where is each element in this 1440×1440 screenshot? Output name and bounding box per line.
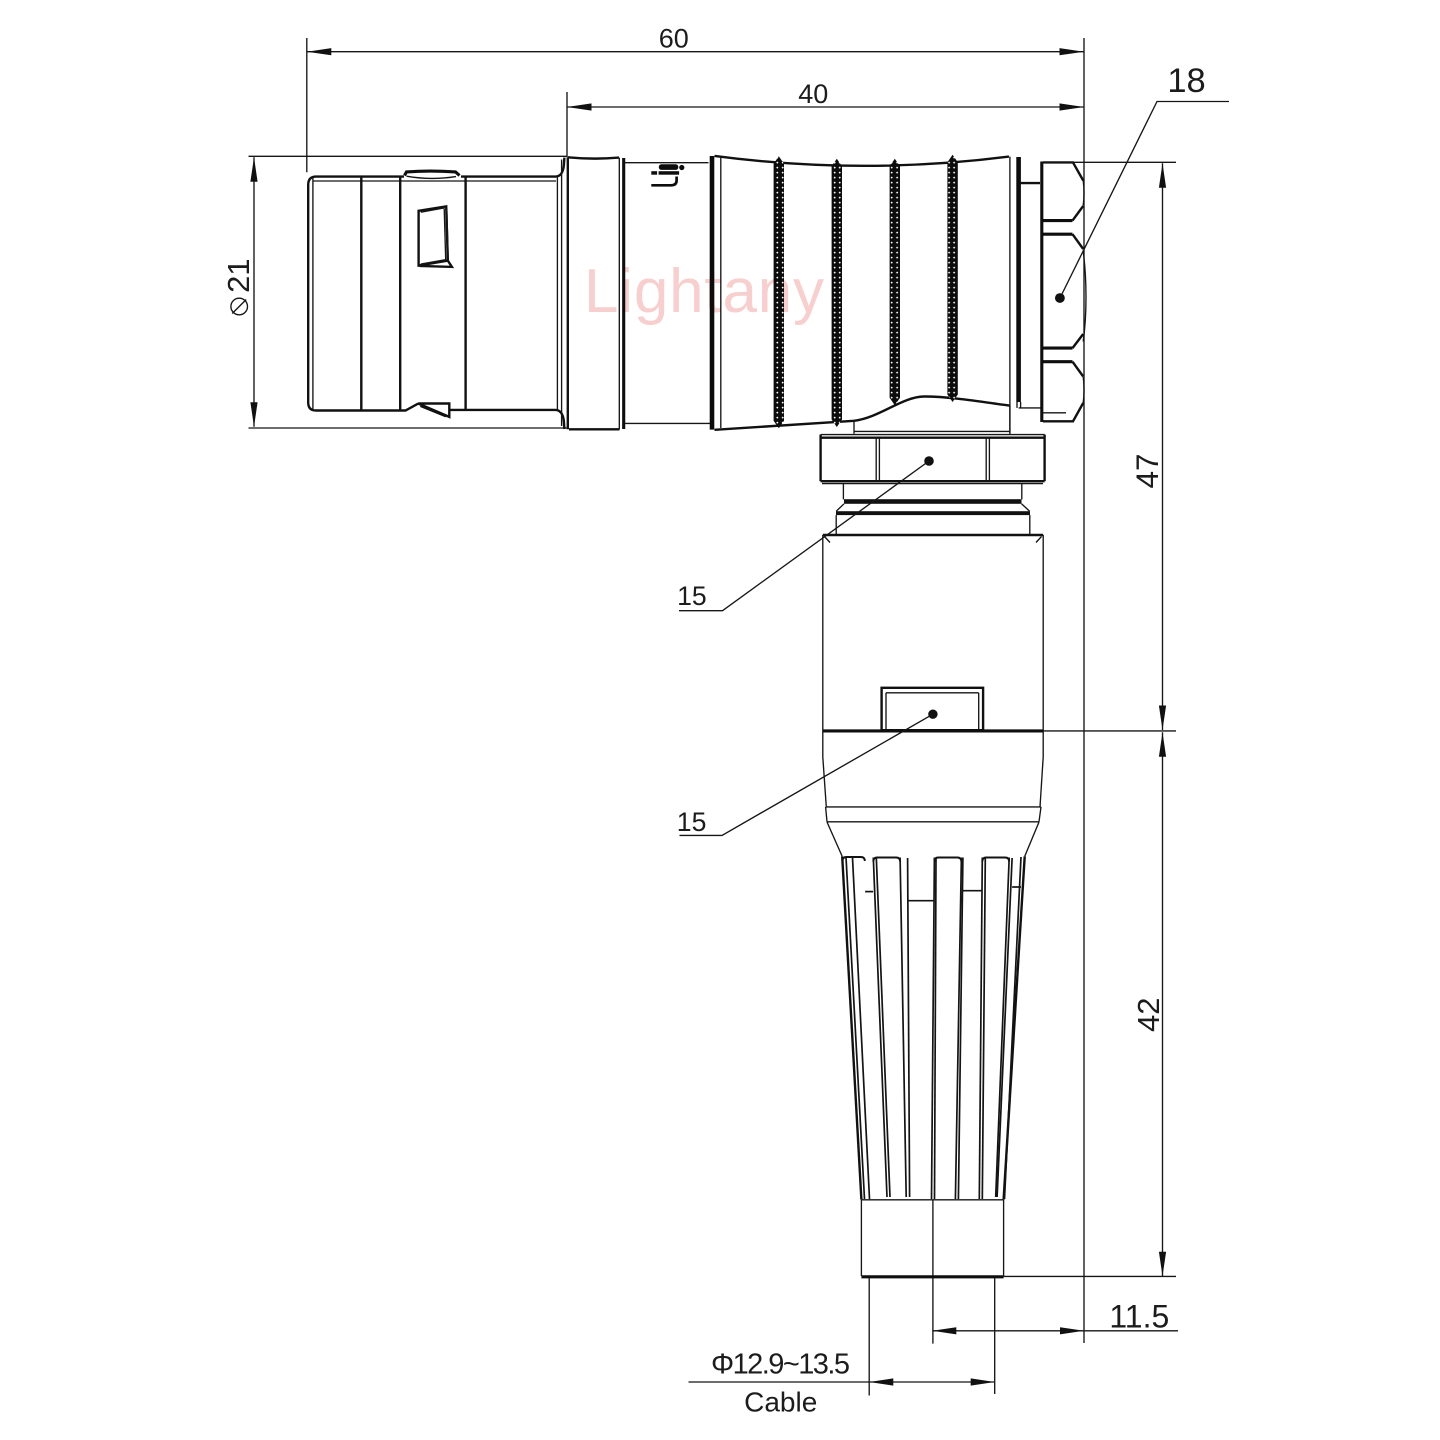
svg-text:60: 60 bbox=[659, 23, 689, 53]
svg-text:40: 40 bbox=[798, 79, 828, 109]
svg-text:15: 15 bbox=[677, 807, 707, 837]
svg-text:18: 18 bbox=[1167, 62, 1205, 100]
svg-text:Φ12.9~13.5: Φ12.9~13.5 bbox=[711, 1348, 850, 1380]
svg-text:47: 47 bbox=[1129, 453, 1165, 488]
svg-text:Cable: Cable bbox=[744, 1386, 817, 1417]
svg-text:42: 42 bbox=[1131, 998, 1166, 1032]
svg-text:15: 15 bbox=[677, 581, 707, 611]
svg-text:Lightany: Lightany bbox=[584, 257, 824, 326]
svg-text:21: 21 bbox=[221, 258, 256, 292]
svg-text:11.5: 11.5 bbox=[1109, 1298, 1169, 1334]
